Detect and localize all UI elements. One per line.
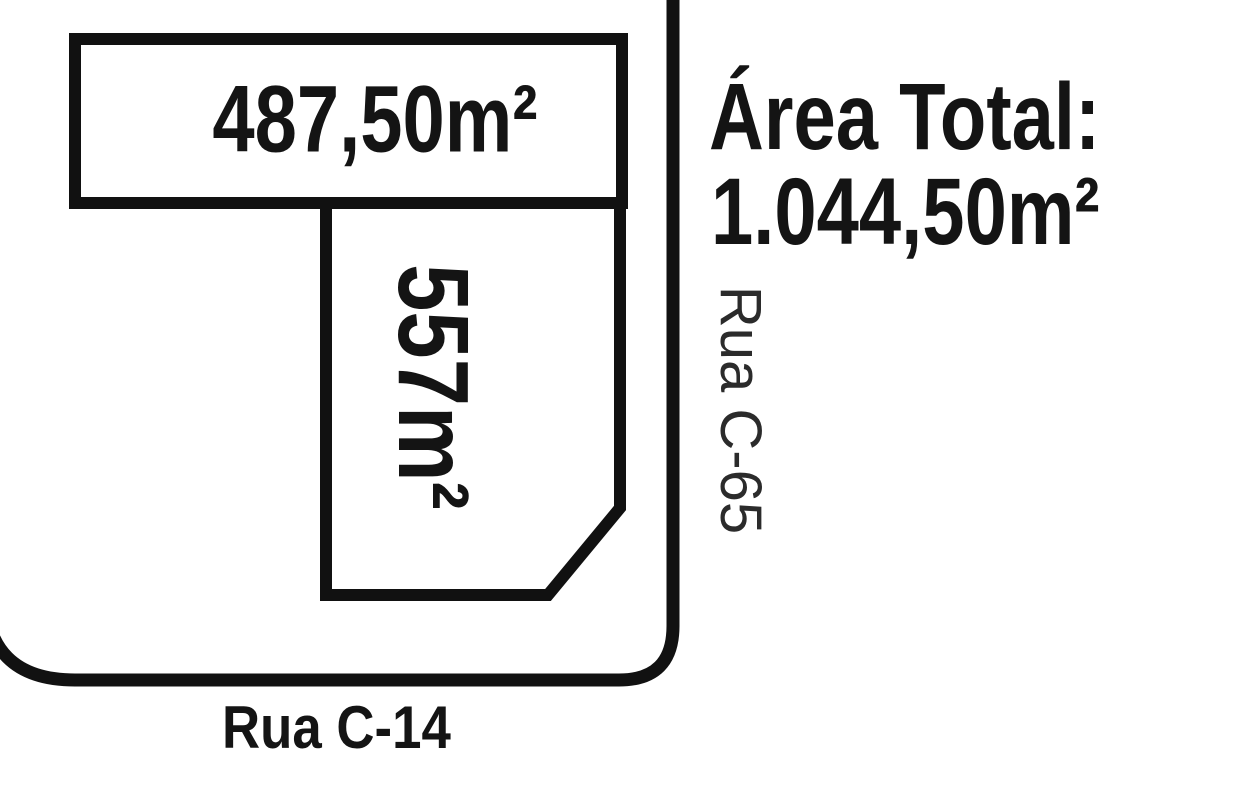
street-name-rua-c65: Rua C-65 xyxy=(711,286,769,534)
plot-557-area-label: 557m² xyxy=(383,264,483,510)
area-total-title: Área Total: xyxy=(709,70,1100,165)
street-name-rua-c14: Rua C-14 xyxy=(222,698,451,758)
area-total-value: 1.044,50m² xyxy=(711,165,1100,260)
lot-plan-diagram: { "diagram": { "plot_top": { "area": "48… xyxy=(0,0,1235,800)
plot-487-area-label: 487,50m² xyxy=(212,73,537,168)
